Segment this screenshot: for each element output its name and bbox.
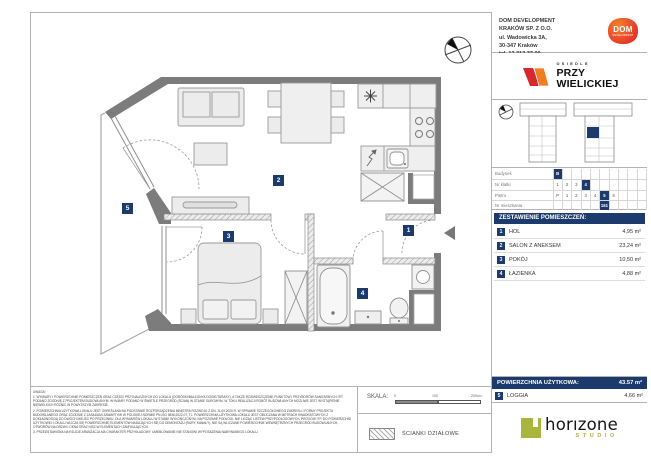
usable-area-bar: POWIERZCHNIA UŻYTKOWA: 43.57 m² — [491, 377, 647, 389]
room-row-salon: 2 SALON Z ANEKSEM 23,24 m² — [494, 239, 645, 253]
developer-block: DOM DEVELOPMENT KRAKÓW SP. Z O.O. ul. Wa… — [491, 12, 647, 53]
bed — [181, 243, 278, 324]
kitchen-niche — [413, 175, 434, 199]
key-plan-drawing — [492, 100, 646, 166]
estate-name-line2: WIELICKIEJ — [556, 79, 618, 90]
bathtub — [317, 265, 350, 327]
room-badge-3: 3 — [223, 231, 234, 242]
scale-box: SKALA: 0 100 200cm — [357, 387, 491, 414]
room-name: ŁAZIENKA — [509, 271, 622, 277]
floor-plan-drawing — [31, 13, 491, 387]
room-row-lazienka: 4 ŁAZIENKA 4,88 m² — [494, 267, 645, 281]
room-list: ZESTAWIENIE POMIESZCZEŃ: 1 HOL 4,95 m² 2… — [491, 210, 647, 377]
room-badge-1: 1 — [403, 225, 414, 236]
developer-line: ul. Wadowicka 3A, — [499, 34, 608, 42]
loggia-outline — [101, 113, 153, 354]
building-key-plan — [491, 100, 647, 168]
location-table: Budynek B Nr klatki 1 2 3 4 Piętro P 1 2… — [491, 168, 647, 210]
footer-note-3: 3. PRZEDSTAWIONA NA RZUCIE ARANŻACJA MA … — [33, 430, 351, 434]
developer-line: KRAKÓW SP. Z O.O. — [499, 25, 608, 33]
horizone-mark-icon — [521, 418, 541, 438]
room-area: 10,50 m² — [619, 257, 645, 263]
room-number-badge: 3 — [497, 256, 505, 264]
developer-address: DOM DEVELOPMENT KRAKÓW SP. Z O.O. ul. Wa… — [492, 12, 608, 52]
room-area: 4,66 m² — [624, 393, 647, 399]
bathroom-niche — [414, 294, 434, 324]
location-row-budynek: Budynek B — [492, 169, 647, 180]
location-row-pietro: Piętro P 1 2 3 4 5 6 — [492, 191, 647, 202]
key-plan-unit-highlight — [587, 127, 599, 138]
room-number-badge: 2 — [497, 242, 505, 250]
partition-legend-label: ŚCIANKI DZIAŁOWE — [402, 431, 459, 437]
location-row-klatka: Nr klatki 1 2 3 4 — [492, 180, 647, 191]
floor-plan: 1 2 3 4 5 — [31, 13, 491, 386]
horizone-name: horızone — [545, 417, 618, 434]
developer-line: DOM DEVELOPMENT — [499, 17, 608, 25]
room-area: 4,88 m² — [622, 271, 645, 277]
compass-icon — [445, 37, 471, 63]
room-name: SALON Z ANEKSEM — [509, 243, 619, 249]
usable-area-label: POWIERZCHNIA UŻYTKOWA: — [497, 380, 579, 386]
room-name: HOL — [509, 229, 622, 235]
washing-machine — [412, 265, 434, 289]
developer-line: 30-347 Kraków — [499, 42, 608, 50]
usable-area-value: 43.57 m² — [619, 380, 642, 386]
estate-w-icon — [520, 65, 550, 87]
room-badge-2: 2 — [273, 175, 284, 186]
loggia-row: 5 LOGGIA 4,66 m² — [491, 389, 647, 403]
bedroom-wardrobe — [285, 271, 307, 324]
tv-cabinet — [172, 197, 249, 214]
dining-set — [268, 83, 344, 143]
room-badge-4: 4 — [357, 288, 368, 299]
kitchen-sink — [387, 149, 408, 168]
toilet — [390, 298, 408, 324]
horizone-studio-logo: horızone STUDIO — [491, 403, 647, 453]
room-row-pokoj: 3 POKÓJ 10,50 m² — [494, 253, 645, 267]
room-badge-5: 5 — [122, 203, 133, 214]
room-name: LOGGIA — [507, 393, 624, 399]
entrance-arrow-icon — [444, 226, 455, 240]
scale-segment-empty — [438, 400, 481, 404]
key-plan-building-left — [520, 103, 566, 162]
washbasin — [355, 311, 381, 324]
scale-tick-0: 0 — [394, 394, 396, 398]
scale-label: SKALA: — [367, 394, 388, 406]
key-plan-compass-icon — [499, 105, 513, 119]
coffee-table — [194, 143, 227, 165]
room-list-header: ZESTAWIENIE POMIESZCZEŃ: — [494, 213, 645, 224]
floorplan-sheet: { "developer": { "lines": ["DOM DEVELOPM… — [0, 0, 651, 460]
room-row-hol: 1 HOL 4,95 m² — [494, 225, 645, 239]
uwaga-heading: UWAGA: — [33, 390, 351, 394]
scale-tick-200: 200cm — [471, 394, 482, 398]
room-number-badge: 4 — [497, 270, 505, 278]
footer-note-2: 2. POWIERZCHNIA UŻYTKOWA LOKALU JEST OKR… — [33, 409, 351, 430]
room-name: POKÓJ — [509, 257, 619, 263]
scale-bar: 0 100 200cm — [395, 394, 485, 406]
shaft-box — [361, 173, 404, 201]
partition-hatch-swatch — [369, 428, 395, 440]
partition-legend: ŚCIANKI DZIAŁOWE — [357, 414, 491, 453]
estate-word-osiedle: OSIEDLE — [556, 62, 618, 66]
room-number-badge: 1 — [497, 228, 505, 236]
scale-segment-filled — [395, 400, 438, 404]
footer-notes: UWAGA: 1. WYMIARY I POWIERZCHNIE POMIESZ… — [33, 390, 351, 436]
horizone-sub: STUDIO — [545, 433, 618, 439]
dom-development-logo: DOM DEVELOPMENT — [608, 18, 638, 44]
key-plan-building-right — [574, 103, 632, 162]
sofa — [178, 88, 244, 126]
room-number-badge: 5 — [495, 392, 503, 400]
estate-logo-block: OSIEDLE PRZY WIELICKIEJ — [491, 53, 647, 100]
outer-walls — [105, 77, 441, 331]
room-area: 23,24 m² — [619, 243, 645, 249]
room-area: 4,95 m² — [622, 229, 645, 235]
footer-note-1: 1. WYMIARY I POWIERZCHNIE POMIESZCZEŃ OR… — [33, 395, 351, 407]
scale-tick-100: 100 — [432, 394, 438, 398]
